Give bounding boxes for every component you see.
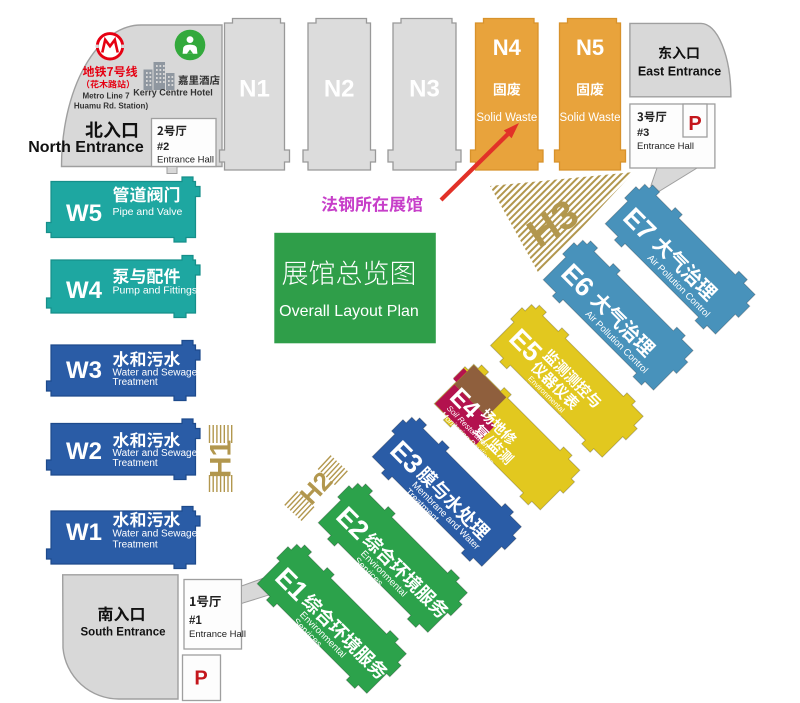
svg-text:South Entrance: South Entrance: [81, 627, 166, 639]
svg-text:Solid Waste: Solid Waste: [476, 112, 537, 124]
svg-text:Overall Layout Plan: Overall Layout Plan: [279, 303, 419, 320]
svg-text:East Entrance: East Entrance: [638, 65, 721, 79]
svg-text:Water and Sewage: Water and Sewage: [113, 529, 198, 540]
svg-text:#1: #1: [189, 615, 202, 627]
svg-text:W4: W4: [66, 277, 103, 304]
svg-text:W2: W2: [66, 438, 102, 465]
svg-text:#2: #2: [157, 141, 169, 153]
svg-text:Kerry Centre Hotel: Kerry Centre Hotel: [133, 88, 213, 98]
svg-text:P: P: [194, 668, 207, 690]
svg-text:P: P: [688, 113, 701, 135]
svg-text:Treatment: Treatment: [113, 539, 158, 550]
svg-text:Treatment: Treatment: [113, 458, 158, 469]
svg-text:Treatment: Treatment: [113, 377, 158, 388]
svg-text:W1: W1: [66, 519, 102, 546]
svg-text:North Entrance: North Entrance: [28, 139, 144, 156]
svg-text:W3: W3: [66, 357, 102, 384]
svg-text:Metro Line 7: Metro Line 7: [82, 92, 130, 101]
svg-text:Entrance Hall: Entrance Hall: [157, 155, 214, 166]
svg-text:Solid Waste: Solid Waste: [560, 112, 621, 124]
svg-text:H1: H1: [205, 440, 238, 478]
svg-text:N2: N2: [324, 76, 355, 103]
svg-text:Entrance Hall: Entrance Hall: [189, 629, 246, 640]
svg-text:#3: #3: [637, 127, 649, 139]
svg-text:N4: N4: [493, 35, 522, 60]
svg-text:N1: N1: [239, 76, 270, 103]
svg-text:Pump and Fittings: Pump and Fittings: [113, 285, 198, 297]
svg-text:W5: W5: [66, 200, 102, 227]
svg-text:Entrance Hall: Entrance Hall: [637, 141, 694, 152]
svg-text:Huamu Rd. Station): Huamu Rd. Station): [74, 102, 149, 111]
svg-text:N3: N3: [409, 76, 440, 103]
svg-text:N5: N5: [576, 35, 604, 60]
svg-text:Pipe and Valve: Pipe and Valve: [113, 206, 183, 218]
